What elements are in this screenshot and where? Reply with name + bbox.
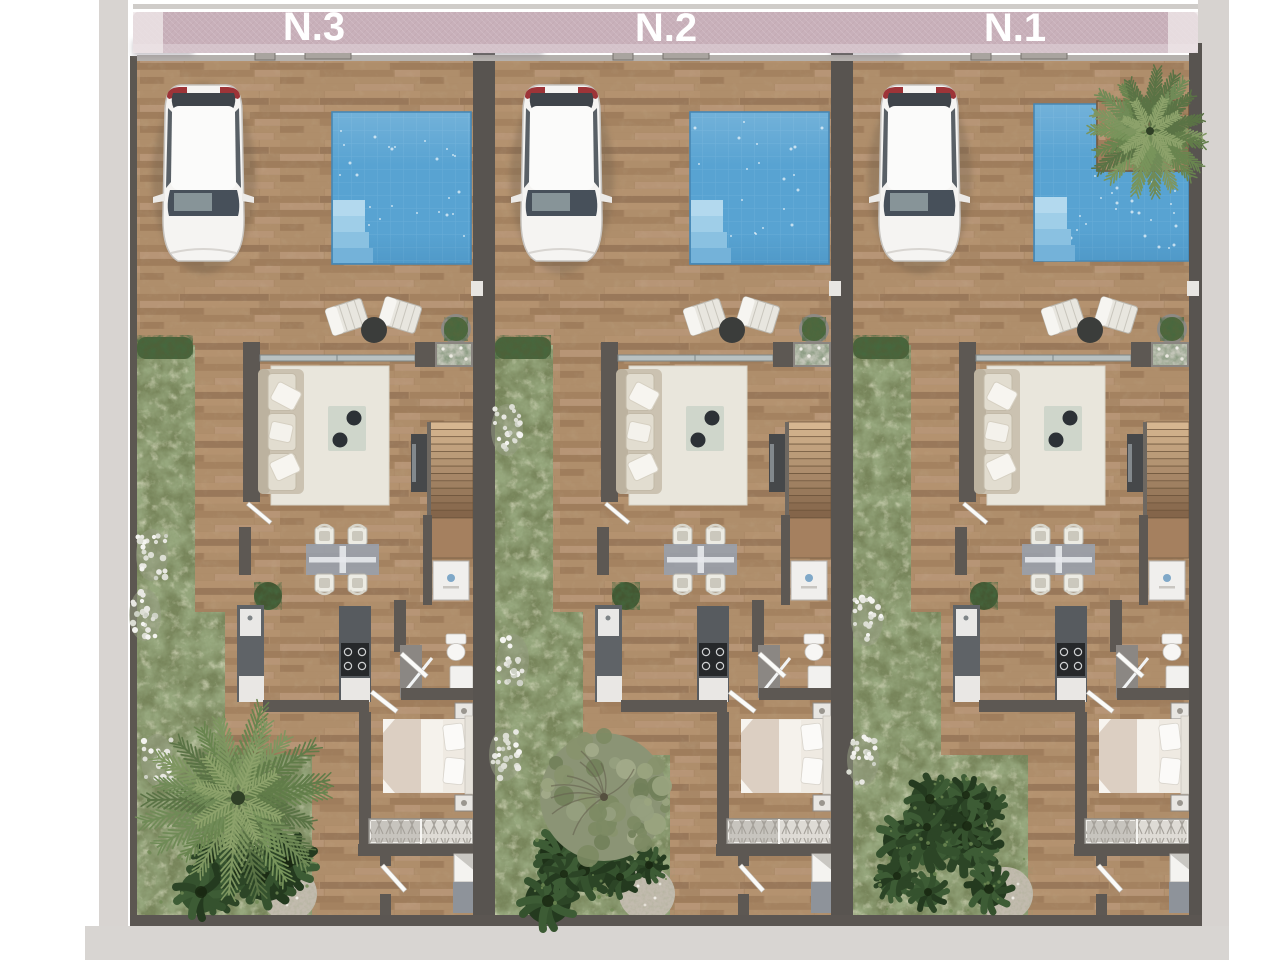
svg-text:N.1: N.1	[984, 6, 1046, 50]
svg-text:N.3: N.3	[283, 5, 345, 49]
svg-text:N.2: N.2	[635, 6, 697, 50]
